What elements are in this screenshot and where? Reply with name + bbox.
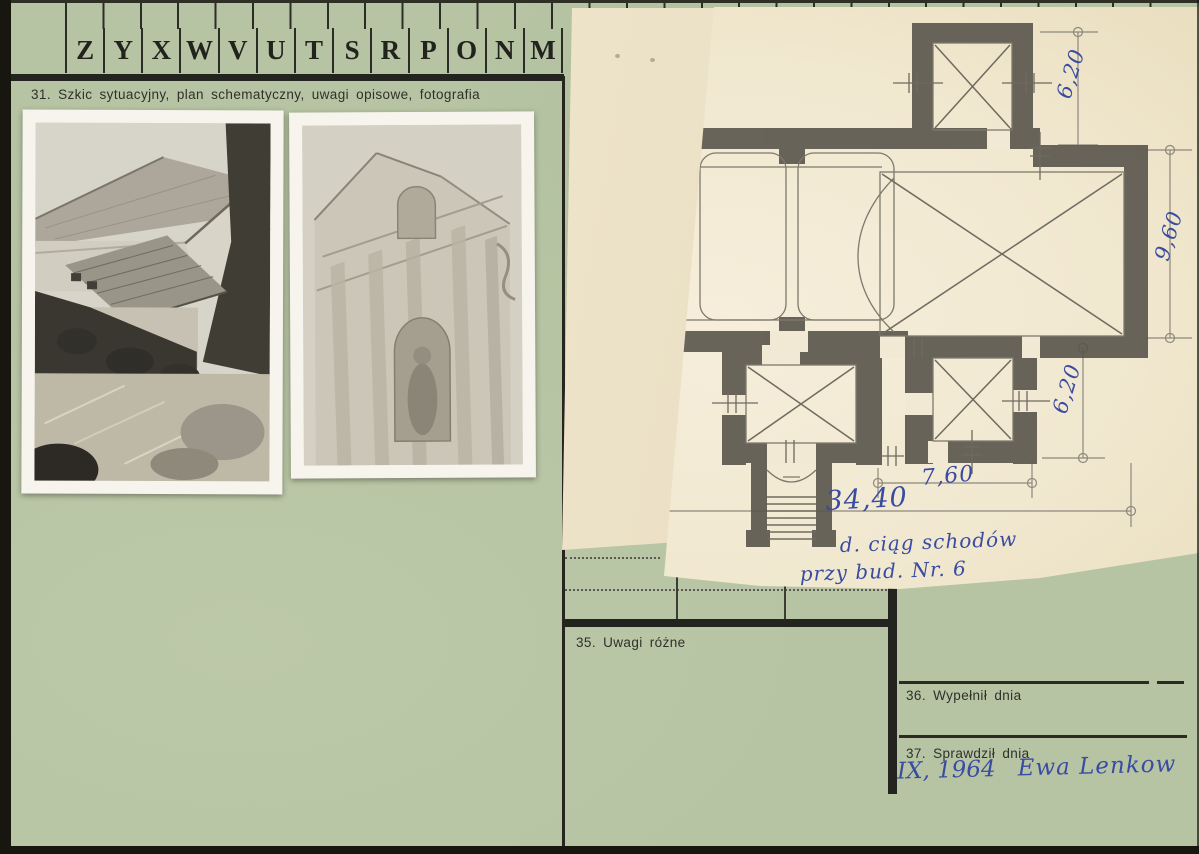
section-36-rule	[899, 681, 1149, 684]
dim-tower-depth: 6,20	[1052, 46, 1090, 102]
dim-chapel-depth: 6,20	[1048, 361, 1086, 417]
scan-edge-top	[0, 0, 1199, 3]
tab-letter-label: V	[228, 35, 248, 66]
plan-walls	[664, 23, 1148, 547]
checked-date: IX, 1964	[897, 756, 996, 785]
section-37-rule	[899, 735, 1187, 738]
tab-letter: P	[408, 28, 446, 73]
tab-letter: U	[256, 28, 294, 73]
section-36-rule-short	[1157, 681, 1184, 684]
tab-letter-label: O	[456, 35, 477, 66]
section-31-label: 31. Szkic sytuacyjny, plan schematyczny,…	[31, 87, 480, 102]
paper-smudge	[615, 54, 620, 58]
tab-letter: R	[370, 28, 408, 73]
dim-total-length: 34,40	[825, 482, 909, 517]
tab-letter-label: M	[530, 35, 555, 66]
tab-letter-label: R	[381, 35, 401, 66]
section-35-label: 35. Uwagi różne	[576, 635, 686, 650]
tab-letter: V	[218, 28, 256, 73]
tab-letter: O	[447, 28, 485, 73]
photo-facade-art	[302, 124, 523, 465]
plan-note-line2: przy bud. Nr. 6	[799, 556, 967, 586]
photo-facade	[289, 111, 536, 478]
tab-letter-label: X	[152, 35, 172, 66]
tab-letter: Z	[65, 28, 103, 73]
top-rule	[8, 74, 564, 81]
checked-signature: Ewa Lenkow	[1017, 751, 1176, 781]
photo-courtyard	[21, 110, 283, 495]
tab-letter: T	[294, 28, 332, 73]
plan-note-line1: d. ciąg schodów	[839, 527, 1017, 557]
tab-letter-label: U	[266, 35, 286, 66]
dotted-rule	[565, 557, 660, 559]
scan-edge-bottom	[0, 846, 1199, 854]
archival-card-scan: Z Y X W V U T S R P O N M 31. Szkic sytu…	[0, 0, 1199, 854]
printer-imprint-bar	[888, 568, 897, 794]
tab-letter: M	[523, 28, 563, 73]
dotted-rule	[565, 589, 891, 591]
tab-letter: W	[179, 28, 217, 73]
tab-letter: N	[485, 28, 523, 73]
alphabet-tab-strip: Z Y X W V U T S R P O N M	[65, 28, 563, 73]
table-vertical-rule	[676, 576, 678, 621]
photo-courtyard-art	[34, 123, 270, 482]
tab-letter-label: W	[186, 35, 213, 66]
scan-edge-left	[0, 0, 11, 854]
dim-chapel-width: 7,60	[920, 461, 975, 491]
tab-letter-label: S	[345, 35, 360, 66]
tab-letter-label: P	[420, 35, 437, 66]
staircase-steps	[767, 497, 816, 539]
tab-letter: S	[332, 28, 370, 73]
tab-letter-label: T	[305, 35, 323, 66]
dim-chancel-width: 9,60	[1150, 208, 1188, 264]
section-36-label: 36. Wypełnił dnia	[906, 688, 1022, 703]
photo-courtyard-image	[34, 123, 270, 482]
paper-smudge	[650, 58, 655, 62]
section-35-rule	[565, 619, 892, 627]
tab-letter: Y	[103, 28, 141, 73]
tab-letter-label: Z	[76, 35, 94, 66]
tab-letter-label: Y	[113, 35, 133, 66]
photo-facade-image	[302, 124, 523, 465]
tab-letter: X	[141, 28, 179, 73]
tab-letter-label: N	[495, 35, 515, 66]
